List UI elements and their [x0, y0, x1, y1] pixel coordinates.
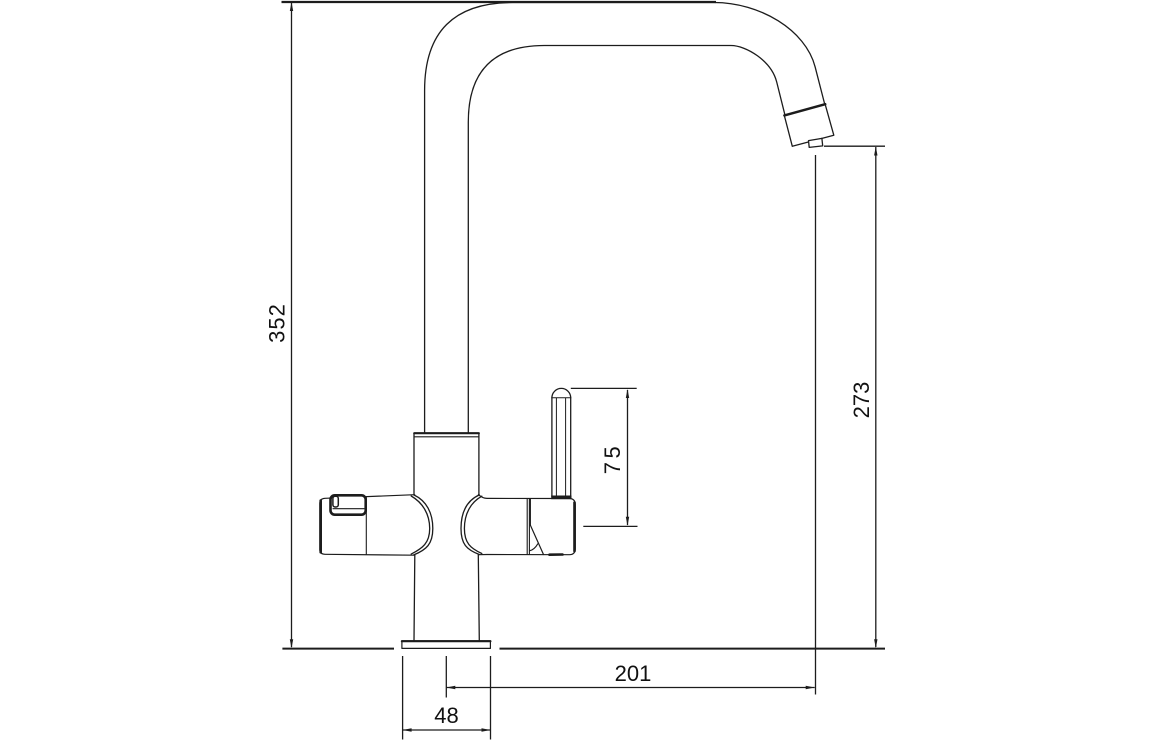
- svg-text:75: 75: [600, 443, 625, 474]
- svg-text:273: 273: [849, 382, 874, 419]
- svg-text:48: 48: [434, 703, 458, 728]
- svg-text:201: 201: [615, 661, 652, 686]
- svg-text:352: 352: [264, 303, 289, 343]
